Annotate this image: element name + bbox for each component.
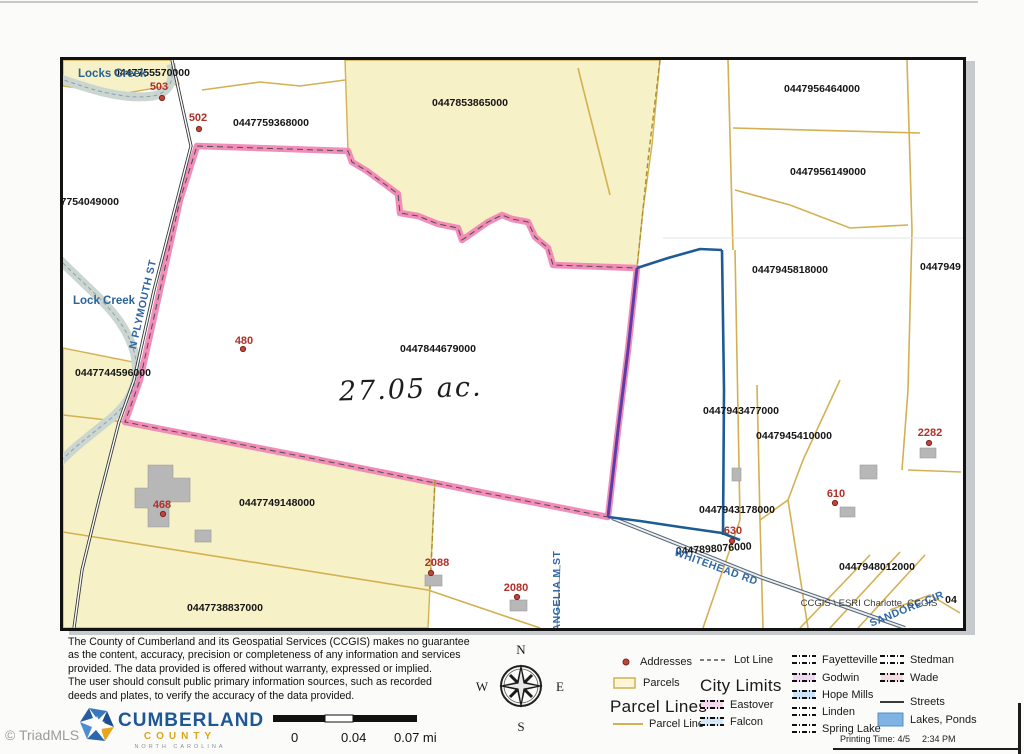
parcel-id-label: 0447945410000: [756, 430, 832, 442]
city-limit-icon: [792, 653, 816, 666]
address-dot-icon: [618, 655, 634, 669]
parcel-line-icon: [613, 719, 643, 729]
address-label: 502: [189, 112, 207, 124]
address-dot: [514, 594, 519, 599]
disclaimer-line: deeds and plates, to verify the accuracy…: [68, 690, 488, 703]
city-limit-icon: [792, 671, 816, 684]
parcel-id-label: 0447943178000: [699, 504, 775, 516]
street-line-icon: [880, 697, 904, 707]
legend-city-limits-header: City Limits: [700, 676, 782, 696]
disclaimer-line: as the content, accuracy, precision or c…: [68, 649, 488, 662]
legend-city-eastover: Eastover: [700, 698, 773, 711]
legend-label: Godwin: [822, 672, 859, 684]
compass-east-label: E: [556, 679, 564, 694]
parcel-id-label: 0447744596000: [75, 367, 151, 379]
legend-label: Parcel Line: [649, 718, 704, 730]
address-label: 630: [724, 525, 742, 537]
address-dot: [196, 126, 201, 131]
parcel-id-label-clipped: 0447754049000: [63, 196, 119, 208]
legend-parcel-line: Parcel Line: [613, 718, 704, 730]
compass-rose: N S W E: [474, 642, 568, 734]
map-source-credit: CCGIS \ ESRI Charlotte, CCGIS: [801, 598, 938, 609]
creek-label: Locks Creek: [78, 68, 147, 80]
legend-city-stedman: Stedman: [880, 653, 954, 666]
legend-lot-line: Lot Line: [700, 654, 773, 666]
parcel-id-label: 0447943477000: [703, 405, 779, 417]
legend-city-falcon: Falcon: [700, 715, 763, 728]
address-dot: [926, 440, 931, 445]
disclaimer-line: The County of Cumberland and its Geospat…: [68, 636, 488, 649]
parcel-id-label: 0447945818000: [752, 264, 828, 276]
scale-bar: [273, 712, 423, 726]
address-label: 2282: [918, 427, 942, 439]
legend-label: Fayetteville: [822, 654, 878, 666]
address-label: 610: [827, 488, 845, 500]
city-limit-icon: [700, 715, 724, 728]
parcel-id-label: 0447948012000: [839, 561, 915, 573]
legend-label: Eastover: [730, 699, 773, 711]
city-limit-icon: [880, 671, 904, 684]
legend-city-fayetteville: Fayetteville: [792, 653, 878, 666]
address-dot: [159, 95, 164, 100]
legend-label: Linden: [822, 706, 855, 718]
compass-south-label: S: [517, 719, 524, 734]
city-limit-icon: [792, 688, 816, 701]
legend-city-godwin: Godwin: [792, 671, 859, 684]
page-edge-vertical: [1018, 703, 1021, 754]
legend-label: Hope Mills: [822, 689, 873, 701]
lake-swatch-icon: [877, 712, 904, 727]
compass-star-highlight: [505, 670, 537, 702]
logo-pinwheel-icon: [80, 708, 114, 741]
address-label: 2088: [425, 557, 449, 569]
address-dot: [240, 346, 245, 351]
city-limit-icon: [792, 705, 816, 718]
legend-parcel-lines-header: Parcel Lines: [610, 697, 707, 717]
parcel-id-label: 0447749148000: [239, 497, 315, 509]
legend-label: Lot Line: [734, 654, 773, 666]
legend-label: Spring Lake: [822, 723, 881, 735]
legend-label: Streets: [910, 696, 945, 708]
parcel-swatch-icon: [613, 676, 637, 690]
parcel-id-label: 0447759368000: [233, 117, 309, 129]
legend-label: Addresses: [640, 656, 692, 668]
legend-city-linden: Linden: [792, 705, 855, 718]
printing-time: Printing Time: 4/5: [840, 734, 910, 744]
parcel-id-label-clipped: 0447949: [920, 261, 961, 273]
address-dot: [428, 570, 433, 575]
map-edge-label: 04: [945, 594, 957, 606]
triadmls-watermark: © TriadMLS: [5, 727, 79, 743]
address-label: 503: [150, 81, 168, 93]
address-dot: [832, 500, 837, 505]
scanned-parcel-map-page: { "page": { "watermark": "© TriadMLS" },…: [0, 0, 1024, 754]
disclaimer-line: The user should consult public primary i…: [68, 676, 488, 689]
parcel-map: 0447755570000 0447759368000 044785386500…: [60, 57, 966, 631]
legend-label: Falcon: [730, 716, 763, 728]
scan-top-edge: [0, 1, 978, 3]
parcel-id-label: 0447738837000: [187, 602, 263, 614]
printing-clock: 2:34 PM: [922, 734, 956, 744]
address-label: 480: [235, 335, 253, 347]
city-limit-icon: [792, 722, 816, 735]
legend-addresses: Addresses: [618, 655, 692, 669]
scale-tick-mid: 0.04: [341, 730, 366, 745]
scale-tick-end: 0.07 mi: [394, 730, 437, 745]
compass-west-label: W: [476, 679, 489, 694]
lot-line-icon: [700, 655, 728, 665]
parcel-id-label: 0447844679000: [400, 343, 476, 355]
page-edge-horizontal: [833, 748, 1021, 750]
legend-label: Stedman: [910, 654, 954, 666]
parcel-id-label: 0447853865000: [432, 97, 508, 109]
city-limit-icon: [700, 698, 724, 711]
legend-city-wade: Wade: [880, 671, 938, 684]
logo-sub: COUNTY: [144, 731, 216, 742]
legend-parcels: Parcels: [613, 676, 680, 690]
address-dot: [160, 511, 165, 516]
disclaimer-line: provided. The data provided is offered w…: [68, 663, 488, 676]
logo-name: CUMBERLAND: [118, 710, 264, 731]
disclaimer-text: The County of Cumberland and its Geospat…: [68, 636, 488, 703]
legend-lakes-ponds: Lakes, Ponds: [877, 712, 977, 727]
address-label: 2080: [504, 582, 528, 594]
address-label: 468: [153, 499, 171, 511]
parcel-id-label: 0447956464000: [784, 83, 860, 95]
parcel-id-label: 0447956149000: [790, 166, 866, 178]
legend-city-hope-mills: Hope Mills: [792, 688, 873, 701]
scale-tick-start: 0: [291, 730, 298, 745]
legend-label: Wade: [910, 672, 938, 684]
compass-north-label: N: [516, 642, 526, 657]
cumberland-county-logo: CUMBERLAND COUNTY NORTH CAROLINA: [76, 705, 306, 751]
street-label: ANGELIA M ST: [551, 550, 563, 628]
city-limit-icon: [880, 653, 904, 666]
creek-label: Lock Creek: [73, 295, 136, 307]
parcel-map-canvas: 0447755570000 0447759368000 044785386500…: [63, 60, 963, 628]
legend-label: Parcels: [643, 677, 680, 689]
legend-streets: Streets: [880, 696, 945, 708]
handwritten-acreage-note: 27.05 ac.: [337, 372, 483, 408]
logo-state: NORTH CAROLINA: [134, 744, 225, 750]
legend-label: Lakes, Ponds: [910, 714, 977, 726]
